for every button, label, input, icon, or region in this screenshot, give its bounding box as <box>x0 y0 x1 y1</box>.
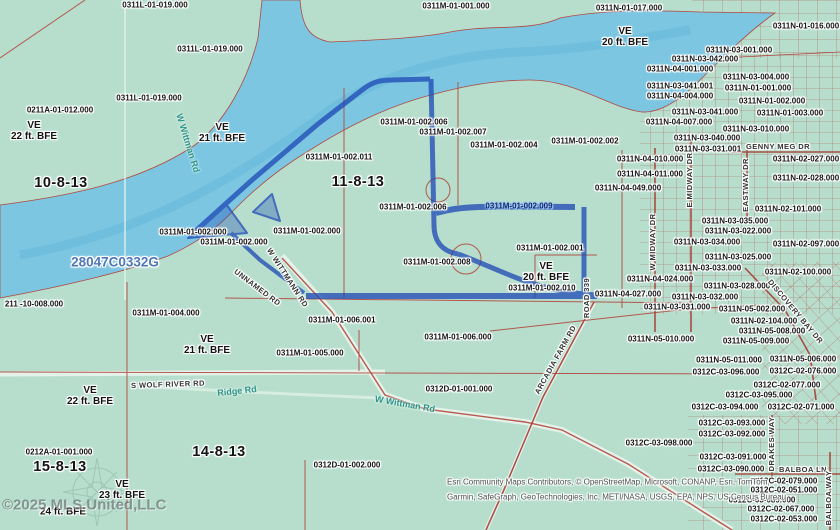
parcel-label: 0311N-04-001.000 <box>647 66 713 75</box>
map-canvas[interactable]: 0311L-01-019.0000311M-01-001.0000311N-01… <box>0 0 840 530</box>
parcel-label: 0311N-03-025.000 <box>705 254 771 263</box>
parcel-label: 0311N-03-032.000 <box>672 294 738 303</box>
parcel-label: 0311N-02-028.000 <box>773 175 839 184</box>
parcel-label: 0312C-03-092.000 <box>699 431 766 440</box>
road-label-basemap: W Wittman Rd <box>174 112 201 173</box>
flood-zone-label: VE 20 ft. BFE <box>523 261 569 283</box>
section-label: 15-8-13 <box>33 459 86 475</box>
flood-zone-label: VE 20 ft. BFE <box>602 26 648 48</box>
parcel-label: 0311N-03-041.000 <box>672 109 738 118</box>
parcel-label: 0311M-01-002.006 <box>380 119 447 128</box>
parcel-label: 0311N-03-034.000 <box>674 239 740 248</box>
parcel-label: 0312C-02-071.000 <box>768 404 835 413</box>
parcel-label: 0311N-03-033.000 <box>675 265 741 274</box>
parcel-label: 0311N-05-011.000 <box>696 357 762 366</box>
firm-panel-label: 28047C0332G <box>71 254 159 269</box>
parcel-label: 0311N-01-016.000 <box>773 23 839 32</box>
road-label: S WOLF RIVER RD <box>131 380 205 391</box>
parcel-label: 0312C-03-096.000 <box>693 369 760 378</box>
parcel-label: 0311N-05-008.000 <box>739 328 805 337</box>
parcel-label: 0311N-04-010.000 <box>617 156 683 165</box>
parcel-label: 0311N-02-100.000 <box>765 269 831 278</box>
parcel-label: 0311N-03-028.000 <box>704 283 770 292</box>
parcel-label: 0312C-03-090.000 <box>698 466 765 475</box>
parcel-label: 0311N-03-041.001 <box>647 83 713 92</box>
section-label: 11-8-13 <box>332 174 385 190</box>
parcel-label: 0311M-01-002.002 <box>551 138 618 147</box>
parcel-label: 0311N-01-017.000 <box>596 5 662 14</box>
parcel-label: 0312C-03-094.000 <box>692 404 759 413</box>
parcel-label: 0311M-01-002.000 <box>159 229 226 238</box>
parcel-label: 0311N-02-097.000 <box>773 241 839 250</box>
parcel-label: 0311M-01-001.000 <box>422 3 489 12</box>
road-label-basemap: W Wittman Rd <box>374 394 436 415</box>
parcel-label: 0311N-04-011.000 <box>617 171 683 180</box>
parcel-label: 0311N-05-010.000 <box>628 336 694 345</box>
road-label-basemap: Ridge Rd <box>217 384 257 398</box>
section-label: 10-8-13 <box>34 175 87 191</box>
road-label: DRAKES WAY <box>768 417 776 472</box>
road-label: BALBOA LN <box>779 466 827 474</box>
parcel-label: 0311N-01-001.000 <box>725 85 791 94</box>
parcel-label: 0312C-02-053.000 <box>751 516 818 525</box>
road-label: W MIDWAY DR <box>649 213 657 270</box>
parcel-label: 0311N-01-002.000 <box>739 98 805 107</box>
parcel-label: 0311N-01-003.000 <box>757 110 823 119</box>
flood-zone-label: VE 21 ft. BFE <box>199 122 245 144</box>
parcel-label: 0311M-01-002.001 <box>516 245 583 254</box>
section-label: 14-8-13 <box>192 444 245 460</box>
parcel-label: 0311M-01-006.001 <box>308 317 375 326</box>
flood-zone-label: VE 22 ft. BFE <box>67 385 113 407</box>
parcel-label: 0311N-03-040.000 <box>674 135 740 144</box>
parcel-label: 0312C-03-095.000 <box>726 392 793 401</box>
parcel-label: 0311L-01-019.000 <box>116 95 181 104</box>
parcel-label: 0312D-01-002.000 <box>314 462 381 471</box>
parcel-label: 0311N-05-009.000 <box>723 338 789 347</box>
parcel-label: 0311N-03-004.000 <box>723 74 789 83</box>
parcel-label: 0311M-01-006.000 <box>424 334 491 343</box>
parcel-label: 0311N-04-004.000 <box>647 93 713 102</box>
watermark: ©2025 MLS United,LLC <box>2 498 166 515</box>
road-label: ROAD 339 <box>583 278 591 318</box>
parcel-label: 0311N-04-024.000 <box>627 276 693 285</box>
parcel-label: 0312C-03-093.000 <box>699 420 766 429</box>
parcel-label: 0311M-01-002.000 <box>273 228 340 237</box>
parcel-label: 0311N-02-101.000 <box>755 206 821 215</box>
road-label: GENNY MEG DR <box>746 143 810 151</box>
parcel-label: 0312C-03-098.000 <box>626 440 693 449</box>
parcel-label: 0312C-02-076.000 <box>770 368 837 377</box>
labels-layer: 0311L-01-019.0000311M-01-001.0000311N-01… <box>0 0 840 530</box>
road-label: UNNAMED RD <box>232 268 282 308</box>
parcel-label: 0312C-02-067.000 <box>748 506 815 515</box>
parcel-label: 0212A-01-001.000 <box>26 449 93 458</box>
parcel-label: 0312D-01-001.000 <box>426 386 493 395</box>
parcel-label: 0311M-01-002.011 <box>306 154 373 163</box>
parcel-label: 0311N-03-042.000 <box>672 56 738 65</box>
parcel-label: 0311M-01-005.000 <box>276 350 343 359</box>
road-label: E MIDWAY DR <box>686 153 694 208</box>
parcel-label: 0311N-03-035.000 <box>702 218 768 227</box>
parcel-label: 0311L-01-019.000 <box>177 46 242 55</box>
flood-zone-label: VE 21 ft. BFE <box>184 334 230 356</box>
parcel-label: 0311N-03-031.000 <box>644 304 710 313</box>
parcel-label: 0311M-01-002.007 <box>419 129 486 138</box>
parcel-label-selected: 0311M-01-002.009 <box>485 203 552 212</box>
parcel-label: 0311N-03-022.000 <box>705 228 771 237</box>
parcel-label: 0311L-01-019.000 <box>122 2 187 11</box>
parcel-label: 0311N-02-104.000 <box>731 318 797 327</box>
attribution-line: Esri Community Maps Contributors, © Open… <box>447 479 770 488</box>
parcel-label: 211 -10-008.000 <box>5 301 63 310</box>
parcel-label: 0311N-05-002.000 <box>719 306 785 315</box>
parcel-label: 0311M-01-002.010 <box>508 285 575 294</box>
flood-zone-label: VE 22 ft. BFE <box>11 120 57 142</box>
road-label: BALBOA WAY <box>825 471 833 526</box>
parcel-label: 0311N-04-027.000 <box>595 291 661 300</box>
parcel-label: 0311M-01-002.006 <box>379 204 446 213</box>
road-label: EASTWAY DR <box>742 158 750 212</box>
parcel-label: 0311N-02-027.000 <box>773 156 839 165</box>
road-label: ARCADIA FARM RD <box>534 324 579 396</box>
parcel-label: 0311N-04-007.000 <box>646 119 712 128</box>
parcel-label: 0311N-04-049.000 <box>595 185 661 194</box>
parcel-label: 0311M-01-002.008 <box>403 259 470 268</box>
parcel-label: 0311M-01-002.000 <box>200 239 267 248</box>
parcel-label: 0211A-01-012.000 <box>27 107 93 116</box>
parcel-label: 0311M-01-002.004 <box>470 142 537 151</box>
parcel-label: 0311N-05-006.000 <box>770 356 836 365</box>
parcel-label: 0312C-03-091.000 <box>700 454 767 463</box>
parcel-label: 0311M-01-004.000 <box>132 310 199 319</box>
attribution-line: Garmin, SafeGraph, GeoTechnologies, Inc,… <box>447 494 788 503</box>
parcel-label: 0312C-02-077.000 <box>754 382 821 391</box>
